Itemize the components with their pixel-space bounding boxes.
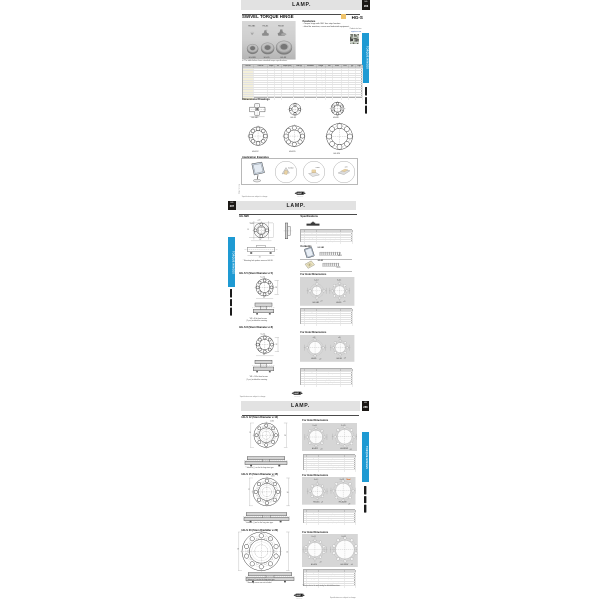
svg-text:8-⌀4.5: 8-⌀4.5 — [312, 536, 316, 538]
svg-text:15: 15 — [247, 229, 249, 231]
svg-text:28: 28 — [259, 239, 261, 241]
svg-text:8-⌀4.5: 8-⌀4.5 — [314, 479, 318, 481]
svg-text:HG-S5: HG-S5 — [312, 358, 317, 360]
svg-text:HG-S15: HG-S15 — [314, 502, 320, 504]
svg-text:⌀28: ⌀28 — [344, 357, 346, 359]
svg-text:HG-S5: HG-S5 — [337, 302, 342, 304]
svg-text:⌀34: ⌀34 — [320, 448, 323, 450]
svg-text:KOGYO CO.: KOGYO CO. — [294, 396, 301, 398]
svg-text:8-⌀4.5: 8-⌀4.5 — [261, 333, 266, 336]
svg-text:⌀38: ⌀38 — [348, 504, 350, 505]
svg-text:8-⌀3.4: 8-⌀3.4 — [337, 279, 341, 281]
svg-text:42: 42 — [287, 551, 289, 553]
svg-text:⌀32: ⌀32 — [319, 358, 321, 360]
svg-text:4-⌀3.4: 4-⌀3.4 — [250, 223, 254, 225]
svg-text:⌀46: ⌀46 — [351, 565, 353, 567]
svg-text:HG-S5: HG-S5 — [262, 26, 268, 28]
svg-text:26: 26 — [284, 435, 286, 437]
svg-text:2-M4: 2-M4 — [271, 476, 275, 478]
svg-text:⌀20: ⌀20 — [258, 219, 261, 222]
svg-text:22: 22 — [263, 296, 265, 298]
svg-text:HG-S8: HG-S8 — [278, 26, 284, 28]
svg-text:38: 38 — [237, 548, 239, 550]
svg-text:2-M5: 2-M5 — [265, 529, 269, 531]
svg-text:32: 32 — [276, 344, 278, 346]
svg-text:8-⌀5.5: 8-⌀5.5 — [340, 479, 344, 481]
svg-text:HG-SB5: HG-SB5 — [313, 302, 319, 304]
svg-text:26: 26 — [263, 354, 265, 356]
svg-text:HG-S12W: HG-S12W — [341, 447, 349, 449]
svg-text:⌀29: ⌀29 — [344, 301, 346, 303]
svg-text:HG-S15W: HG-S15W — [339, 502, 347, 504]
svg-text:⌀38: ⌀38 — [350, 449, 353, 451]
svg-text:28: 28 — [275, 286, 277, 288]
svg-text:HG-S12: HG-S12 — [312, 447, 318, 449]
svg-text:⌀29: ⌀29 — [321, 502, 323, 504]
svg-text:HG-S8: HG-S8 — [337, 358, 342, 360]
svg-text:⌀26: ⌀26 — [313, 337, 316, 339]
svg-text:KOGYO CO.: KOGYO CO. — [296, 597, 303, 599]
svg-text:monitor: monitor — [288, 167, 294, 170]
svg-text:HG-S20: HG-S20 — [311, 564, 317, 566]
svg-text:⌀30: ⌀30 — [338, 337, 341, 339]
svg-text:8-⌀3.4: 8-⌀3.4 — [260, 276, 265, 279]
svg-text:⌀27: ⌀27 — [321, 300, 323, 302]
svg-text:4-⌀3.4: 4-⌀3.4 — [315, 279, 319, 281]
svg-text:2-M4: 2-M4 — [270, 420, 274, 422]
svg-text:KOGYO CO.: KOGYO CO. — [297, 195, 304, 197]
svg-text:HG-S20W: HG-S20W — [341, 564, 349, 566]
svg-text:24: 24 — [249, 432, 251, 434]
svg-text:34: 34 — [258, 257, 260, 259]
svg-text:30: 30 — [286, 492, 288, 494]
svg-text:27: 27 — [248, 489, 250, 491]
svg-text:HG-SB5: HG-SB5 — [248, 26, 255, 28]
svg-text:cover: cover — [316, 166, 321, 169]
svg-text:New!: New! — [347, 479, 352, 481]
svg-text:8-⌀5.5: 8-⌀5.5 — [342, 536, 346, 538]
svg-text:⌀37: ⌀37 — [320, 562, 322, 564]
